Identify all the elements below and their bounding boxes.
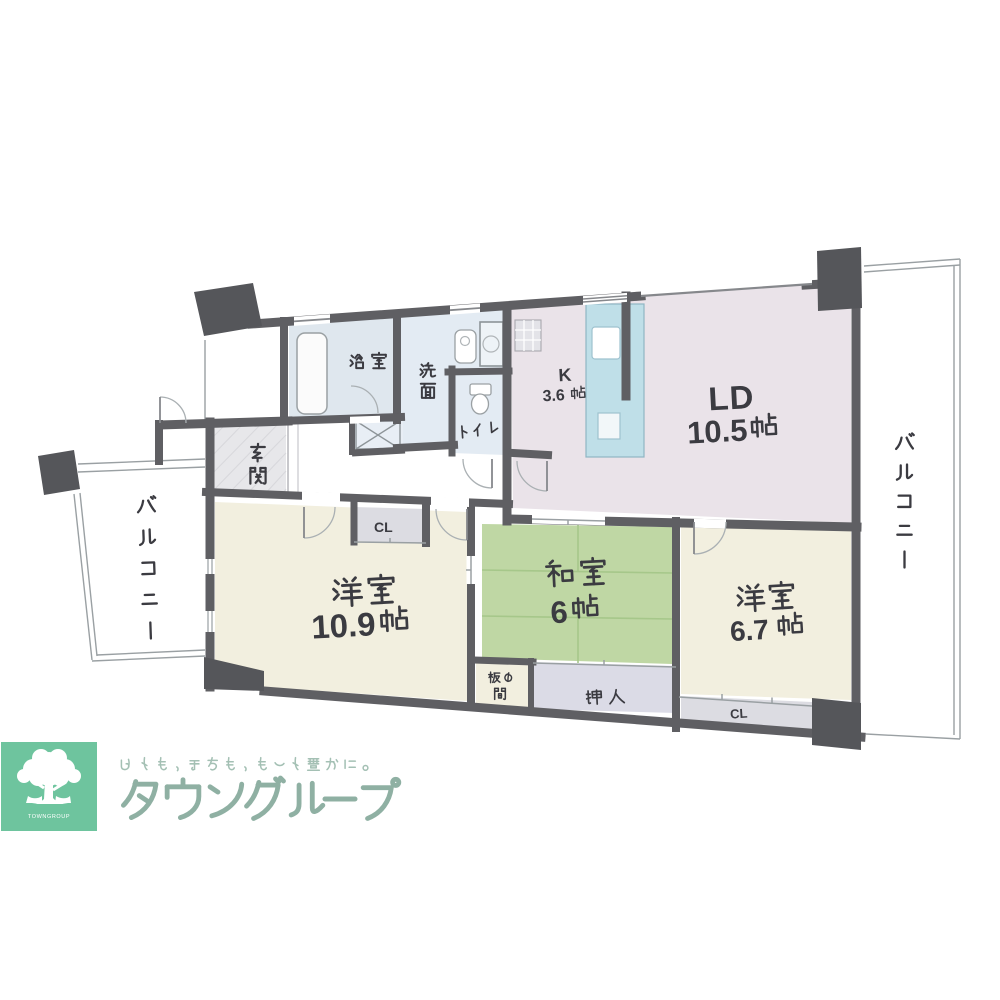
svg-text:3.6: 3.6 (542, 387, 565, 405)
svg-text:6: 6 (550, 594, 569, 630)
svg-text:CL: CL (374, 519, 393, 535)
svg-text:10.9: 10.9 (310, 605, 376, 645)
svg-text:CL: CL (730, 706, 748, 722)
svg-text:K: K (558, 365, 572, 386)
svg-text:6.7: 6.7 (729, 614, 770, 647)
svg-text:LD: LD (707, 378, 755, 417)
svg-text:TOWNGROUP: TOWNGROUP (28, 814, 70, 820)
svg-text:10.5: 10.5 (686, 412, 748, 450)
